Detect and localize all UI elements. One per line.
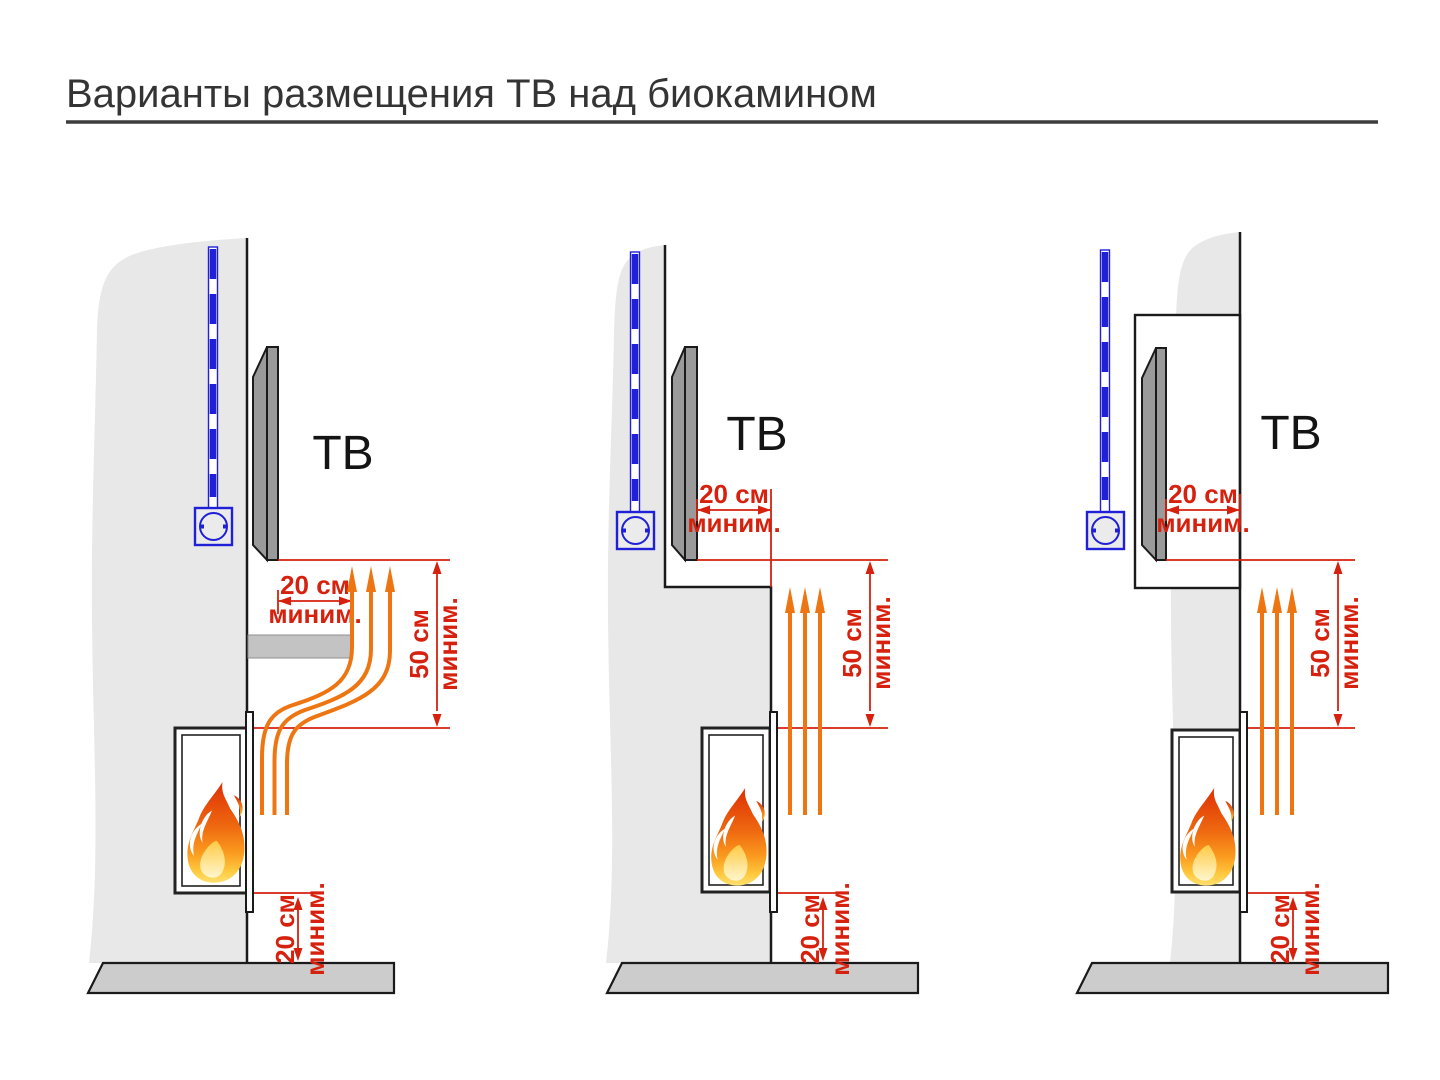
top-gap-value: 50 см	[1305, 608, 1335, 678]
side-gap-value: 20 см	[699, 479, 769, 509]
bottom-gap-value: 20 см	[1265, 894, 1295, 964]
side-gap-qualifier: миним.	[687, 508, 780, 538]
tv-label: ТВ	[726, 408, 787, 461]
floor	[88, 963, 394, 993]
floor	[607, 963, 918, 993]
tv-side-view	[253, 347, 278, 560]
top-gap-value: 50 см	[837, 608, 867, 678]
top-gap-qualifier: миним.	[1334, 596, 1364, 689]
power-outlet	[1087, 512, 1124, 549]
biofireplace	[1172, 712, 1247, 912]
bottom-gap-qualifier: миним.	[300, 882, 330, 975]
bottom-gap-qualifier: миним.	[825, 882, 855, 975]
power-cable	[209, 247, 218, 508]
tv-label: ТВ	[1260, 407, 1321, 460]
top-gap-qualifier: миним.	[866, 596, 896, 689]
floor	[1077, 963, 1388, 993]
top-gap-qualifier: миним.	[433, 597, 463, 690]
page-title: Варианты размещения ТВ над биокамином	[66, 72, 877, 116]
tv-label: ТВ	[312, 427, 373, 480]
heat-flow-arrows	[1257, 587, 1297, 815]
shelf	[248, 635, 352, 658]
diagram-tv-over-shelf: ТВ 20 см миним. 50 см миним. 20 см миним…	[88, 238, 463, 993]
biofireplace	[175, 712, 253, 912]
side-gap-qualifier: миним.	[1156, 508, 1249, 538]
infographic-page: Варианты размещения ТВ над биокамином ТВ	[0, 0, 1440, 1080]
heat-flow-arrows	[785, 587, 825, 815]
bottom-gap-value: 20 см	[795, 894, 825, 964]
top-gap-value: 50 см	[404, 609, 434, 679]
power-outlet	[195, 508, 232, 545]
power-outlet	[617, 512, 654, 549]
biofireplace	[702, 712, 777, 912]
bottom-gap-value: 20 см	[270, 894, 300, 964]
diagram-tv-in-niche: ТВ 20 см миним. 50 см миним. 20 см миним…	[1077, 232, 1388, 993]
side-gap-value: 20 см	[1168, 479, 1238, 509]
power-cable	[631, 252, 640, 512]
diagram-tv-on-recessed-wall: ТВ 20 см миним. 50 см миним. 20 см миним…	[606, 245, 918, 993]
power-cable	[1101, 250, 1110, 512]
side-gap-qualifier: миним.	[268, 599, 361, 629]
bottom-gap-qualifier: миним.	[1295, 882, 1325, 975]
side-gap-value: 20 см	[280, 570, 350, 600]
